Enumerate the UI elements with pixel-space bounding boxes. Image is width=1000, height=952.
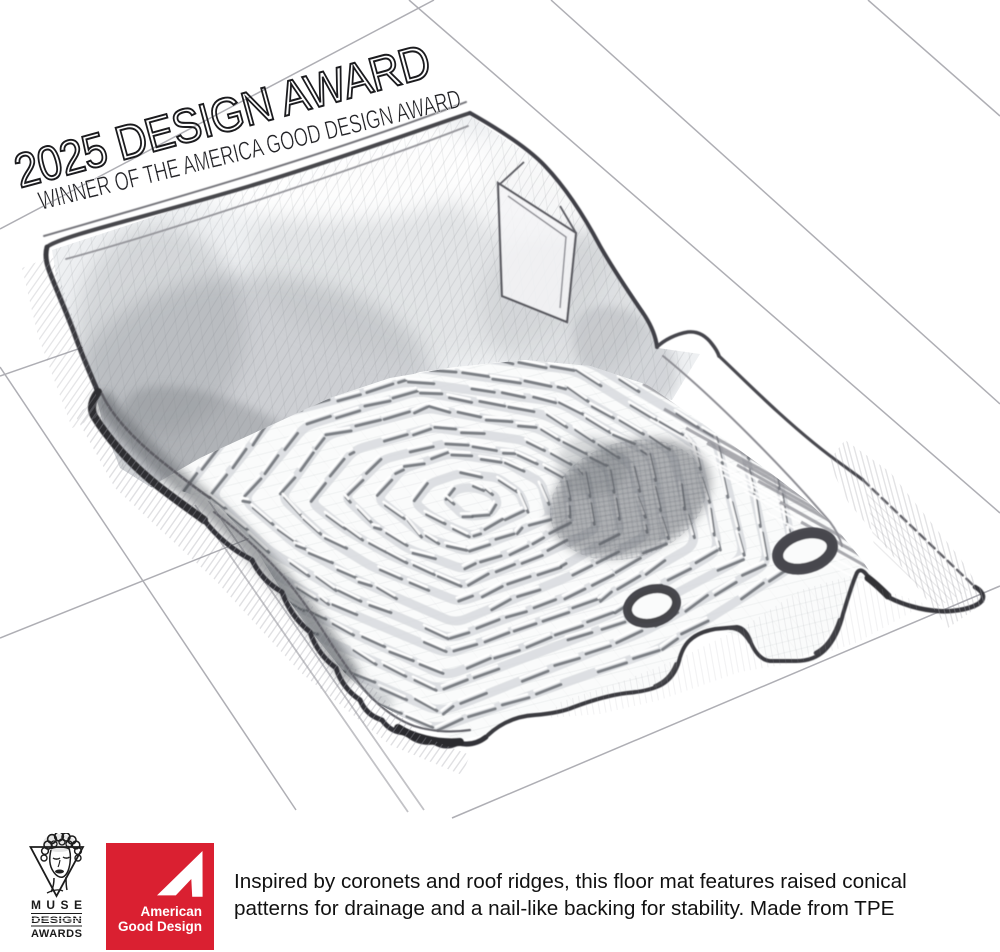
svg-text:DESIGN: DESIGN <box>31 915 82 926</box>
svg-text:AWARDS: AWARDS <box>31 928 82 940</box>
svg-text:MUSE: MUSE <box>31 898 82 912</box>
